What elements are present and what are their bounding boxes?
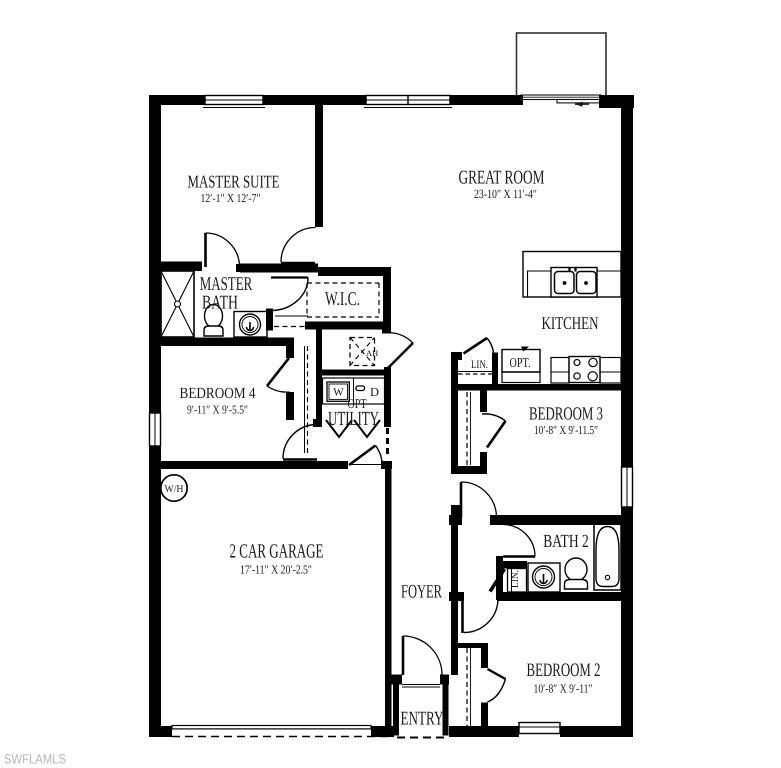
svg-text:GREAT ROOM: GREAT ROOM [459, 168, 545, 189]
svg-text:BATH: BATH [202, 293, 238, 314]
svg-text:2 CAR GARAGE: 2 CAR GARAGE [230, 541, 324, 563]
svg-text:D: D [370, 385, 379, 399]
svg-text:W.I.C.: W.I.C. [325, 289, 360, 310]
svg-text:LIN.: LIN. [471, 359, 488, 371]
svg-text:OPT.: OPT. [510, 355, 531, 370]
svg-text:LIN.: LIN. [510, 570, 521, 588]
svg-text:ENTRY: ENTRY [401, 709, 444, 730]
svg-text:23-10″ X 11′-4″: 23-10″ X 11′-4″ [474, 187, 537, 201]
svg-text:W: W [333, 387, 344, 399]
svg-text:UTILITY: UTILITY [328, 408, 379, 430]
svg-text:17′-11″ X 20′-2.5″: 17′-11″ X 20′-2.5″ [240, 563, 312, 577]
svg-text:12′-1″ X 12′-7″: 12′-1″ X 12′-7″ [201, 191, 261, 205]
svg-text:BATH 2: BATH 2 [543, 532, 589, 552]
svg-text:W/H: W/H [165, 484, 184, 495]
svg-text:MASTER SUITE: MASTER SUITE [188, 172, 280, 192]
svg-text:SWFLAMLS: SWFLAMLS [4, 752, 66, 767]
svg-text:KITCHEN: KITCHEN [542, 313, 599, 333]
svg-text:BEDROOM 3: BEDROOM 3 [529, 405, 603, 425]
svg-text:9′-11″ X 9′-5.5″: 9′-11″ X 9′-5.5″ [187, 403, 248, 417]
svg-text:BEDROOM 4: BEDROOM 4 [180, 385, 256, 402]
svg-text:10′-8″ X 9′-11″: 10′-8″ X 9′-11″ [534, 682, 593, 696]
svg-text:FOYER: FOYER [401, 582, 442, 603]
svg-text:10′-8″ X 9′-11.5″: 10′-8″ X 9′-11.5″ [534, 423, 598, 437]
svg-text:AH: AH [366, 348, 378, 358]
svg-text:BEDROOM 2: BEDROOM 2 [527, 660, 601, 681]
